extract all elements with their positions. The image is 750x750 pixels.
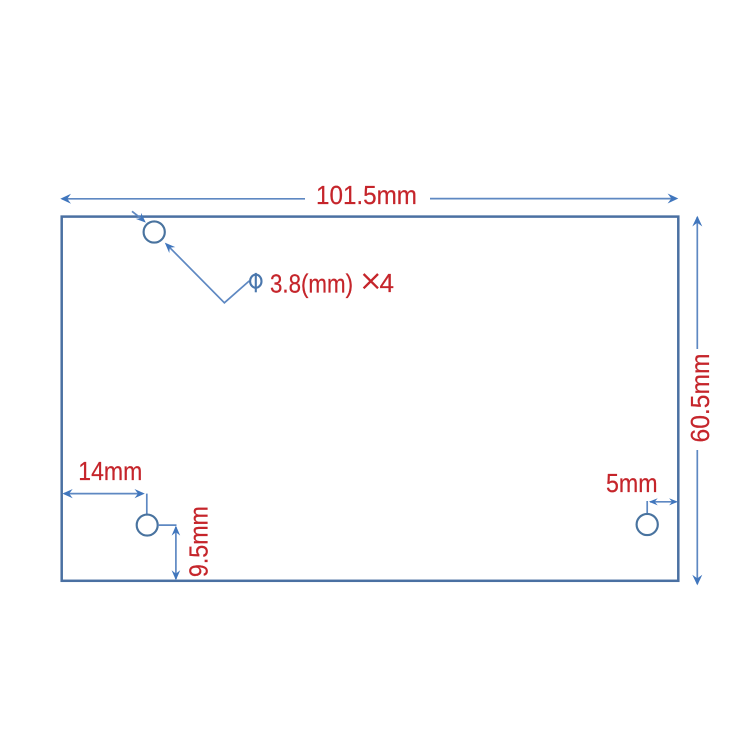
svg-text:5mm: 5mm — [606, 468, 658, 498]
svg-text:4: 4 — [380, 268, 395, 298]
svg-text:101.5mm: 101.5mm — [316, 180, 417, 210]
svg-text:14mm: 14mm — [78, 456, 142, 486]
svg-text:60.5mm: 60.5mm — [685, 354, 715, 443]
svg-text:9.5mm: 9.5mm — [184, 506, 214, 577]
svg-text:3.8(mm): 3.8(mm) — [270, 269, 353, 299]
